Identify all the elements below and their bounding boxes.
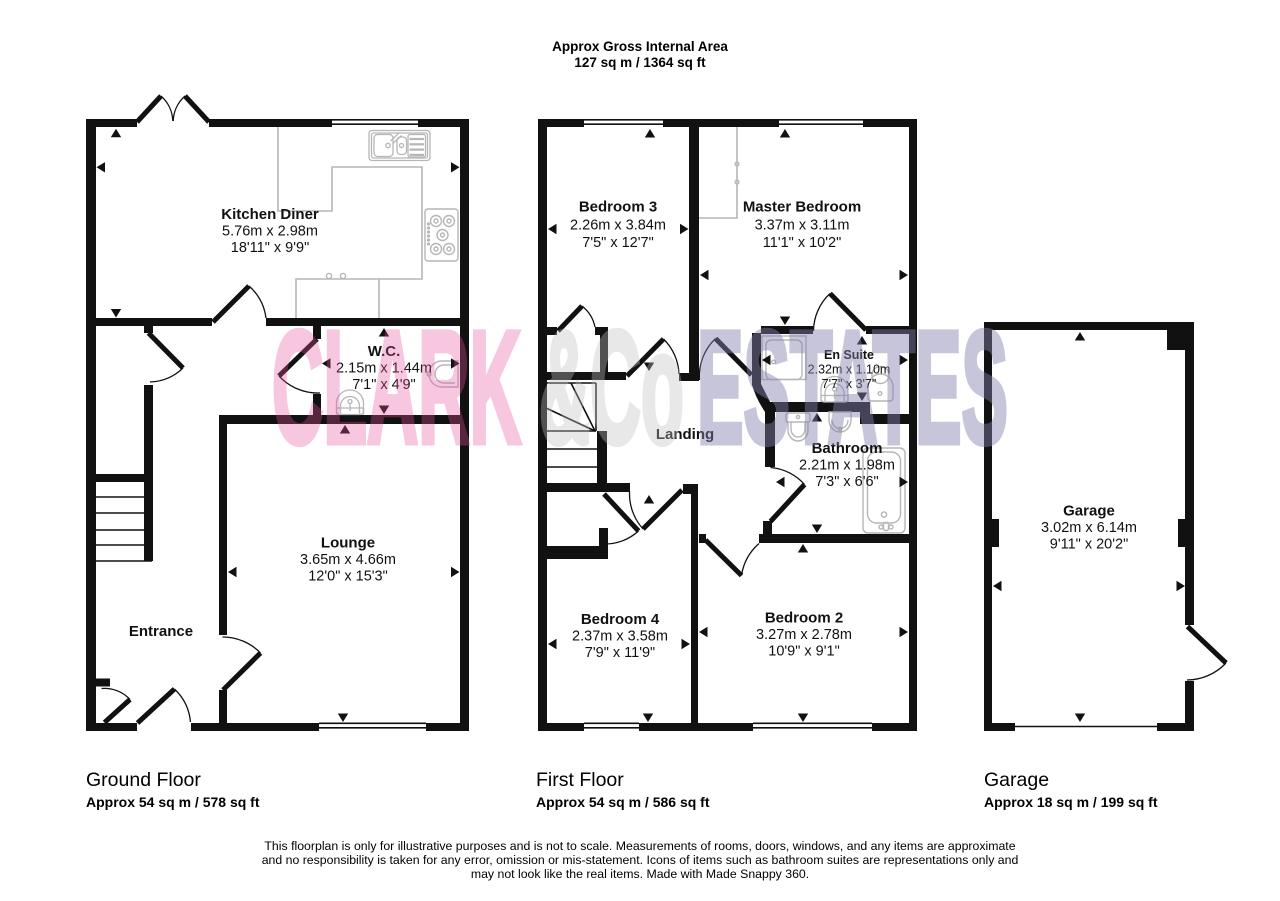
svg-text:Garage: Garage [984,769,1049,791]
svg-text:12'0" x 15'3": 12'0" x 15'3" [308,569,388,585]
svg-text:10'9" x 9'1": 10'9" x 9'1" [768,644,839,660]
svg-text:2.26m x 3.84m: 2.26m x 3.84m [570,218,666,234]
svg-text:Master Bedroom: Master Bedroom [743,199,861,216]
svg-text:2.37m x 3.58m: 2.37m x 3.58m [572,629,668,645]
svg-text:may not look like the real ite: may not look like the real items. Made w… [471,867,809,881]
svg-text:Kitchen Diner: Kitchen Diner [221,206,319,223]
svg-text:7'5" x 12'7": 7'5" x 12'7" [582,235,653,251]
svg-text:&Co: &Co [539,298,684,477]
svg-text:Approx Gross Internal Area: Approx Gross Internal Area [552,39,728,54]
svg-text:ESTATES: ESTATES [697,298,1008,477]
svg-text:This floorplan is only for ill: This floorplan is only for illustrative … [264,839,1015,853]
svg-text:127 sq m / 1364 sq ft: 127 sq m / 1364 sq ft [574,55,706,70]
svg-text:18'11" x 9'9": 18'11" x 9'9" [231,240,309,256]
svg-text:Approx 54 sq m / 586 sq ft: Approx 54 sq m / 586 sq ft [536,794,710,810]
svg-text:Bedroom 3: Bedroom 3 [579,199,657,216]
svg-text:3.27m x 2.78m: 3.27m x 2.78m [756,627,852,643]
svg-text:Approx 54 sq m / 578 sq ft: Approx 54 sq m / 578 sq ft [86,794,260,810]
svg-text:Approx 18 sq m / 199 sq ft: Approx 18 sq m / 199 sq ft [984,794,1158,810]
svg-text:11'1" x 10'2": 11'1" x 10'2" [763,235,841,251]
svg-text:CLARK: CLARK [272,298,521,477]
svg-text:Entrance: Entrance [129,623,193,640]
svg-text:Ground Floor: Ground Floor [86,769,201,791]
svg-text:Lounge: Lounge [321,535,375,552]
svg-text:Bedroom 4: Bedroom 4 [581,611,660,628]
svg-text:First Floor: First Floor [536,769,624,791]
svg-text:9'11" x 20'2": 9'11" x 20'2" [1050,537,1128,553]
svg-text:3.65m x 4.66m: 3.65m x 4.66m [300,552,396,568]
svg-text:3.02m x 6.14m: 3.02m x 6.14m [1041,520,1137,536]
svg-text:5.76m x 2.98m: 5.76m x 2.98m [222,224,318,240]
svg-text:and no responsibility is taken: and no responsibility is taken for any e… [262,853,1019,867]
svg-text:Bedroom 2: Bedroom 2 [765,610,843,627]
svg-text:Garage: Garage [1063,503,1115,520]
svg-text:3.37m x 3.11m: 3.37m x 3.11m [755,218,850,234]
svg-text:7'9" x 11'9": 7'9" x 11'9" [585,645,655,661]
